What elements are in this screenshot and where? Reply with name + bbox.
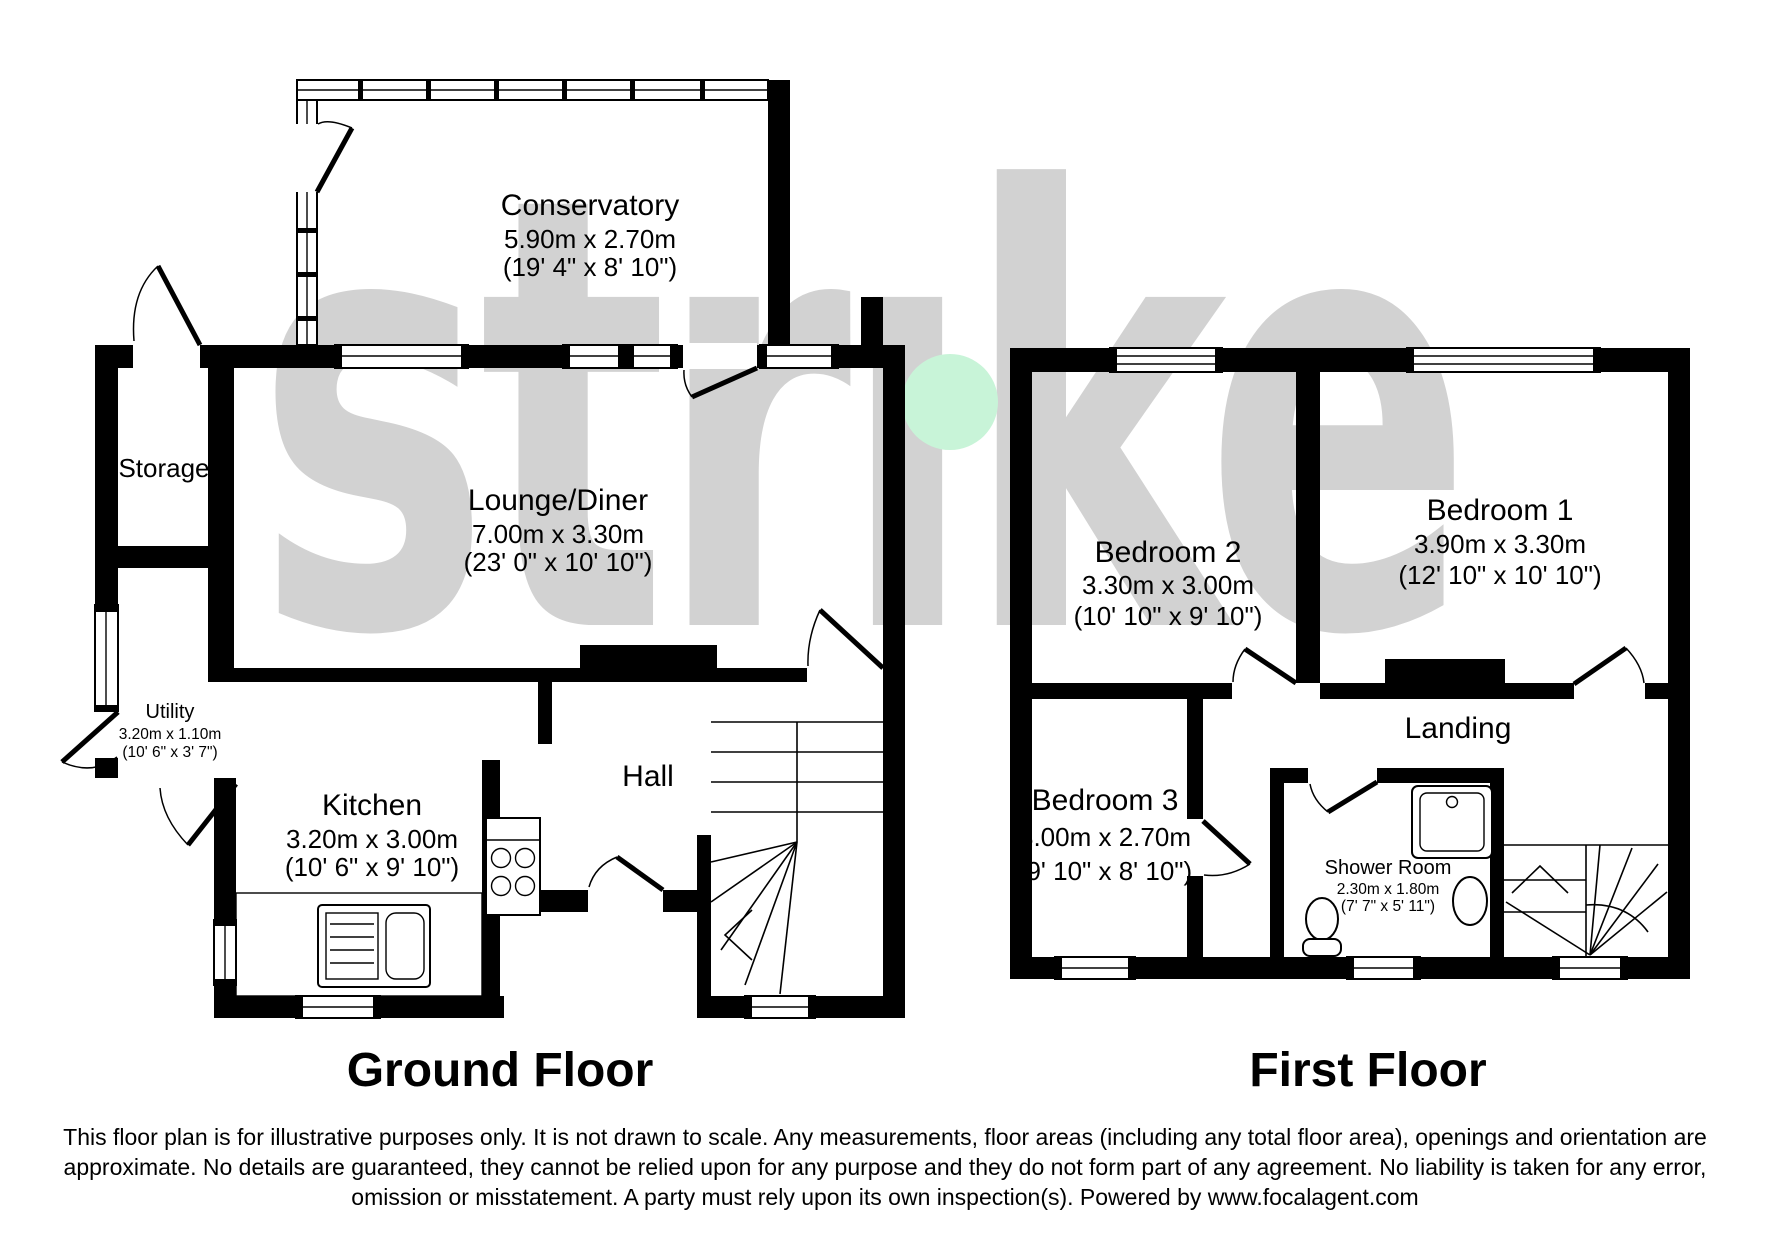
room-label-bedroom2: Bedroom 2 [1095, 536, 1242, 569]
room-label-lounge-diner: Lounge/Diner [468, 484, 648, 517]
room-dims-bedroom1-imperial: (12' 10" x 10' 10") [1398, 560, 1601, 590]
disclaimer-text: This floor plan is for illustrative purp… [15, 1122, 1755, 1212]
ground-floor-title: Ground Floor [347, 1044, 654, 1097]
room-label-conservatory: Conservatory [501, 189, 679, 222]
first-floor-plan: Bedroom 2 3.30m x 3.00m (10' 10" x 9' 10… [1010, 348, 1690, 1097]
room-dims-utility-imperial: (10' 6" x 3' 7") [122, 744, 217, 761]
shower-tray [1412, 786, 1492, 858]
floorplan-page: strıke [0, 0, 1771, 1239]
front-door [133, 266, 200, 369]
basin [1453, 877, 1487, 925]
room-dims-shower-imperial: (7' 7" x 5' 11") [1341, 898, 1435, 915]
first-floor-title: First Floor [1249, 1044, 1486, 1097]
bedroom3-window [1055, 957, 1135, 979]
room-label-bedroom1: Bedroom 1 [1427, 494, 1574, 527]
room-label-shower-room: Shower Room [1325, 857, 1452, 879]
room-dims-bedroom1-metric: 3.90m x 3.30m [1414, 529, 1586, 559]
utility-window [95, 605, 118, 712]
room-dims-bedroom2-metric: 3.30m x 3.00m [1082, 570, 1254, 600]
ground-floor-plan: Conservatory 5.90m x 2.70m (19' 4" x 8' … [62, 80, 905, 1097]
hall-back-door [588, 857, 663, 913]
shower-room-window [1347, 957, 1420, 979]
bedroom2-window [1110, 348, 1222, 372]
room-dims-bedroom2-imperial: (10' 10" x 9' 10") [1074, 601, 1263, 631]
room-dims-lounge-imperial: (23' 0" x 10' 10") [464, 547, 653, 577]
room-label-utility: Utility [146, 701, 195, 723]
landing-window [1553, 957, 1627, 979]
lounge-window [335, 345, 468, 368]
bedroom2-door [1233, 649, 1296, 683]
room-dims-conservatory-imperial: (19' 4" x 8' 10") [503, 252, 677, 282]
lounge-window [760, 345, 838, 368]
floorplan-drawing: Conservatory 5.90m x 2.70m (19' 4" x 8' … [0, 0, 1771, 1239]
room-dims-conservatory-metric: 5.90m x 2.70m [504, 224, 676, 254]
room-dims-kitchen-imperial: (10' 6" x 9' 10") [285, 852, 459, 882]
bedroom1-window [1407, 348, 1600, 372]
room-dims-bedroom3-imperial: (9' 10" x 8' 10") [1018, 856, 1192, 886]
ground-floor-staircase [711, 722, 883, 994]
lounge-hall-door [808, 610, 883, 668]
bedroom3-door [1203, 821, 1250, 876]
first-floor-staircase [1504, 845, 1668, 957]
lounge-window [563, 345, 677, 368]
room-label-landing: Landing [1405, 712, 1512, 745]
toilet [1303, 898, 1341, 956]
room-dims-lounge-metric: 7.00m x 3.30m [472, 519, 644, 549]
kitchen-side-window [214, 920, 236, 985]
room-dims-kitchen-metric: 3.20m x 3.00m [286, 824, 458, 854]
room-label-bedroom3: Bedroom 3 [1032, 784, 1179, 817]
room-dims-shower-metric: 2.30m x 1.80m [1337, 881, 1440, 898]
room-dims-bedroom3-metric: 3.00m x 2.70m [1019, 822, 1191, 852]
conservatory-lounge-door [683, 343, 757, 397]
stairs-window [745, 996, 815, 1018]
bedroom1-door [1574, 648, 1644, 684]
conservatory-door [295, 122, 352, 192]
room-label-kitchen: Kitchen [322, 789, 422, 822]
cooker [486, 818, 540, 915]
kitchen-window [296, 996, 380, 1018]
room-label-hall: Hall [622, 760, 674, 793]
shower-room-door [1310, 782, 1377, 812]
room-label-storage: Storage [118, 453, 209, 483]
sink [318, 905, 430, 987]
room-dims-utility-metric: 3.20m x 1.10m [119, 726, 222, 743]
